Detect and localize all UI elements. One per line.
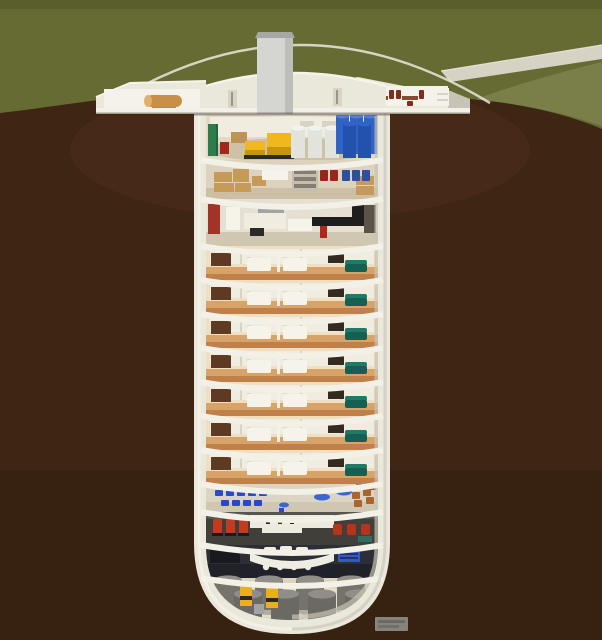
cutaway-illustration — [0, 0, 602, 640]
red-feature-wall — [208, 204, 220, 234]
horizon-band — [0, 0, 602, 9]
wing-cabinet — [436, 88, 449, 106]
water-tanks-blue — [336, 114, 377, 158]
kitchen-island — [288, 219, 312, 231]
red-appliance — [320, 226, 327, 238]
watermark — [375, 617, 408, 631]
fuel-tanks — [291, 125, 339, 158]
pallet-stack — [231, 132, 247, 143]
electrical-cabinet — [208, 124, 218, 156]
watermark-text-line — [378, 620, 405, 623]
fuel-drums — [320, 170, 370, 181]
pantry-shelf — [364, 205, 376, 233]
silo — [194, 110, 390, 634]
wing-chair — [108, 98, 116, 101]
task-chairs — [333, 524, 370, 535]
refrigerator — [226, 207, 240, 230]
gym-machines — [212, 519, 249, 536]
exercise-mat — [358, 536, 372, 542]
entrance-tower — [255, 32, 295, 114]
red-equipment-box — [220, 142, 229, 154]
watermark-text-line — [378, 625, 399, 628]
wing-chair-leg — [108, 101, 111, 109]
cabinets — [244, 213, 286, 229]
small-table — [250, 228, 264, 236]
bunker-cutaway-scene — [0, 0, 602, 640]
level-mechanical — [206, 114, 378, 162]
